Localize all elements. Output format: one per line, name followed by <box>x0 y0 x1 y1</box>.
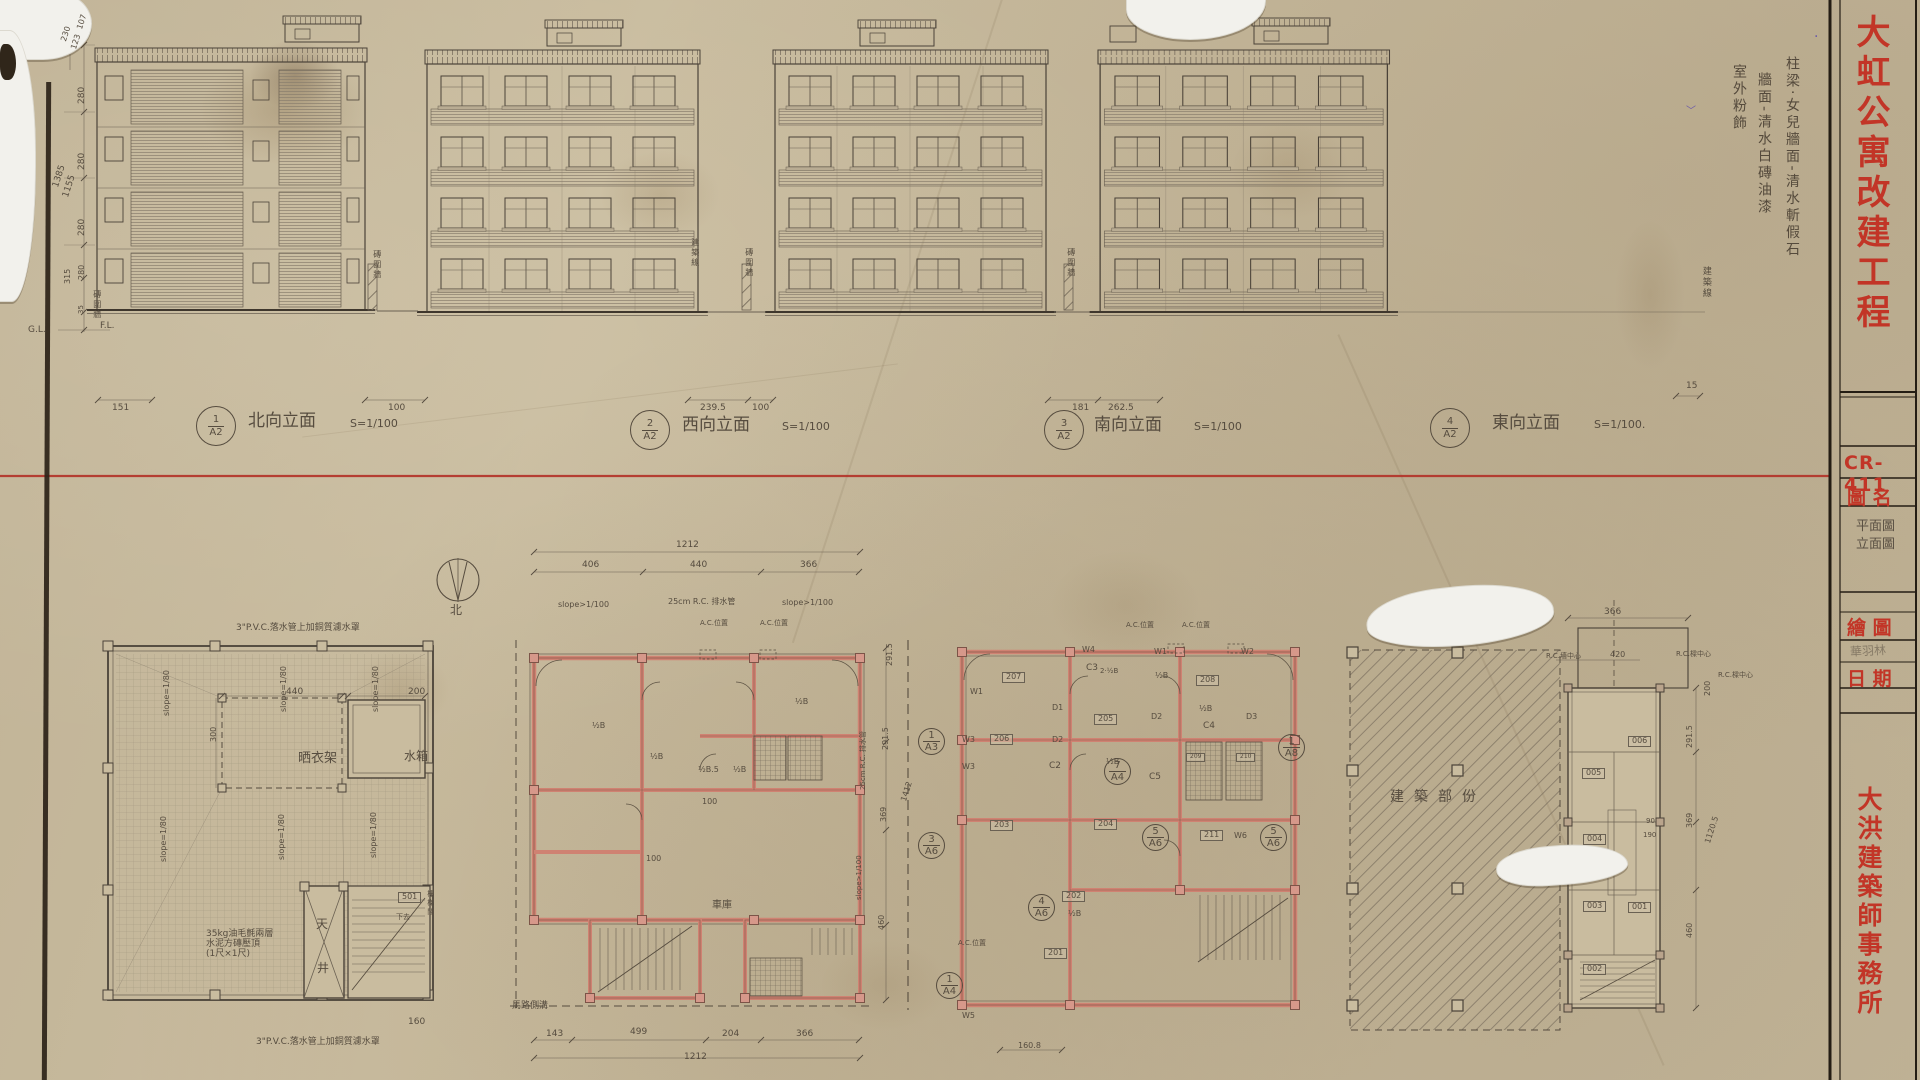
annotation: 馬路側溝 <box>512 1002 548 1012</box>
annotation: 207 <box>1002 672 1025 683</box>
annotation: · <box>1814 30 1818 45</box>
drawn-by-signature: 華羽林 <box>1850 641 1887 660</box>
annotation: ½B <box>1068 910 1081 919</box>
date-label: 日 期 <box>1847 664 1892 691</box>
annotation: slope>1/100 <box>782 599 833 608</box>
annotation: 209 <box>1186 753 1205 762</box>
annotation: 262.5 <box>1108 404 1134 414</box>
annotation: 239.5 <box>700 404 726 414</box>
annotation: 143 <box>546 1030 563 1040</box>
annotation: 210 <box>1236 753 1255 762</box>
annotation: 205 <box>1094 714 1117 725</box>
finish-note-exterior: 室外粉飾 <box>1729 64 1749 132</box>
annotation: 005 <box>1582 768 1605 779</box>
annotation: 300 <box>210 727 219 742</box>
annotation: 7A4 <box>1104 758 1131 785</box>
annotation: A.C.位置 <box>1126 622 1154 630</box>
annotation: 北 <box>450 604 462 617</box>
annotation: W3 <box>962 736 975 745</box>
annotation: 366 <box>796 1030 813 1040</box>
annotation: 369 <box>880 807 889 822</box>
annotation: 460 <box>878 915 887 930</box>
annotation: C5 <box>1149 773 1161 783</box>
annotation: 406 <box>582 561 599 571</box>
drawing-name-label: 圖 名 <box>1847 483 1892 510</box>
drawing-name-line1: 平面圖 <box>1856 515 1895 534</box>
annotation: 4A2 <box>1430 408 1470 448</box>
annotation: slope=1/80 <box>163 670 172 716</box>
annotation: ½B <box>733 766 746 775</box>
annotation: 440 <box>690 561 707 571</box>
annotation: F.L. <box>100 322 114 332</box>
annotation: 208 <box>1196 675 1219 686</box>
annotation: A.C.位置 <box>958 940 986 948</box>
annotation: 晒衣架 <box>298 752 337 766</box>
annotation: 160.8 <box>1018 1042 1041 1051</box>
annotation: slope>1/100 <box>856 855 864 900</box>
annotation: W6 <box>1234 832 1247 841</box>
annotation: 420 <box>1610 651 1625 660</box>
annotation: 1212 <box>676 541 699 551</box>
project-title: 大虹公寓改建工程 <box>1846 14 1895 386</box>
annotation: ½B <box>650 753 663 762</box>
annotation: 35kg油毛氈兩層 水泥方磚壓頂 (1尺×1尺) <box>206 930 273 960</box>
annotation: 5A6 <box>1260 824 1287 851</box>
annotation: 1A8 <box>1278 734 1305 761</box>
annotation: D1 <box>1052 704 1063 713</box>
annotation: G.L. <box>28 326 46 336</box>
annotation: S=1/100 <box>782 421 830 433</box>
annotation: 3"P.V.C.落水管上加銅質濾水罩 <box>256 1038 380 1048</box>
annotation: A.C.位置 <box>1182 622 1210 630</box>
finish-note-structure: 柱梁·女兒牆面-清水斬假石 <box>1782 56 1802 259</box>
annotation: slope=1/80 <box>278 814 287 860</box>
annotation: 1A3 <box>918 728 945 755</box>
annotation: 002 <box>1583 964 1606 975</box>
annotation: S=1/100 <box>1194 421 1242 433</box>
annotation: 1A2 <box>196 406 236 446</box>
annotation: 35 <box>78 305 86 314</box>
annotation: ½B <box>1155 672 1168 681</box>
annotation: 190 <box>1643 832 1656 840</box>
annotation: 100 <box>702 798 717 807</box>
annotation: ½B.5 <box>698 766 719 775</box>
annotation: 200 <box>1704 681 1713 696</box>
annotation: 206 <box>990 734 1013 745</box>
drawing-linework <box>0 0 1920 1080</box>
annotation: 1212 <box>684 1053 707 1063</box>
annotation: 2·½B <box>1100 668 1118 676</box>
torn-edge-mark <box>0 44 16 80</box>
annotation: 樓梯間 <box>426 890 434 917</box>
annotation: 天 <box>316 918 328 931</box>
annotation: 151 <box>112 404 129 414</box>
annotation: 160 <box>408 1018 425 1028</box>
annotation: 201 <box>1044 948 1067 959</box>
annotation: 磚圍牆 <box>92 290 101 320</box>
annotation: W2 <box>1241 648 1254 657</box>
finish-note-wall: 牆面-清水白磚油漆 <box>1754 72 1774 216</box>
annotation: 南向立面 <box>1094 416 1162 435</box>
annotation: 北向立面 <box>248 412 316 431</box>
annotation: R.C.樑中心 <box>1676 651 1711 659</box>
annotation: 280 <box>78 265 87 280</box>
annotation: 5A6 <box>1142 824 1169 851</box>
annotation: D3 <box>1246 713 1257 722</box>
annotation: 3A2 <box>1044 410 1084 450</box>
annotation: slope>1/100 <box>558 601 609 610</box>
annotation: 280 <box>78 153 88 170</box>
annotation: 西向立面 <box>682 416 750 435</box>
annotation: 磚圍牆 <box>1066 248 1075 278</box>
annotation: 1A4 <box>936 972 963 999</box>
architect-firm: 大洪建築師事務所 <box>1850 786 1886 1076</box>
annotation: 291.5 <box>1686 725 1695 748</box>
annotation: 井 <box>317 962 329 975</box>
annotation: W1 <box>1154 648 1167 657</box>
annotation: 2A2 <box>630 410 670 450</box>
annotation: ½B <box>592 722 605 731</box>
annotation: 水箱 <box>404 750 428 763</box>
annotation: 006 <box>1628 736 1651 747</box>
annotation: slope=1/80 <box>370 812 379 858</box>
annotation: C4 <box>1203 722 1215 732</box>
annotation: W5 <box>962 1012 975 1021</box>
annotation: R.C.墻中心 <box>1546 653 1581 661</box>
annotation: W4 <box>1082 646 1095 655</box>
annotation: 003 <box>1583 901 1606 912</box>
annotation: W3 <box>962 763 975 772</box>
annotation: 200 <box>408 688 425 698</box>
annotation: S=1/100 <box>350 418 398 430</box>
annotation: 25cm R.C. 排水管 <box>668 598 735 607</box>
annotation: 磚圍牆 <box>372 250 381 280</box>
annotation: 440 <box>286 688 303 698</box>
annotation: 211 <box>1200 830 1223 841</box>
annotation: 15 <box>1686 382 1697 392</box>
annotation: 100 <box>388 404 405 414</box>
annotation: C3 <box>1086 664 1098 674</box>
annotation: slope=1/80 <box>372 666 381 712</box>
annotation: 下去 <box>396 914 410 922</box>
annotation: W1 <box>970 688 983 697</box>
annotation: S=1/100. <box>1594 419 1645 431</box>
annotation: 291.5 <box>882 727 891 750</box>
annotation: D2 <box>1151 713 1162 722</box>
annotation: 369 <box>1686 813 1695 828</box>
annotation: 204 <box>1094 819 1117 830</box>
annotation: 25cm R.C. 排水管 <box>860 731 868 790</box>
annotation: 499 <box>630 1028 647 1038</box>
blueprint-sheet: 柱梁·女兒牆面-清水斬假石 牆面-清水白磚油漆 室外粉飾 大虹公寓改建工程 CR… <box>0 0 1920 1080</box>
annotation: 291.5 <box>886 643 895 666</box>
annotation: A.C.位置 <box>700 620 728 628</box>
annotation: 004 <box>1583 834 1606 845</box>
annotation: 90 <box>1646 818 1655 826</box>
annotation: 501 <box>398 892 421 903</box>
annotation: 建築線 <box>690 238 699 268</box>
drawn-by-label: 繪 圖 <box>1847 613 1892 640</box>
annotation: 204 <box>722 1030 739 1040</box>
annotation: 車庫 <box>712 900 732 911</box>
annotation: 280 <box>78 87 88 104</box>
drawing-name-line2: 立面圖 <box>1856 533 1895 552</box>
annotation: 366 <box>1604 608 1621 618</box>
annotation: D2 <box>1052 736 1063 745</box>
annotation: 202 <box>1062 891 1085 902</box>
annotation: 315 <box>64 269 73 284</box>
annotation: 100 <box>752 404 769 414</box>
annotation: 100 <box>646 855 661 864</box>
annotation: 366 <box>800 561 817 571</box>
annotation: 460 <box>1686 923 1695 938</box>
annotation: R.C.樑中心 <box>1718 672 1753 680</box>
annotation: A.C.位置 <box>760 620 788 628</box>
annotation: ½B <box>1199 705 1212 714</box>
annotation: ½B <box>795 698 808 707</box>
annotation: 203 <box>990 820 1013 831</box>
annotation: 280 <box>78 219 88 236</box>
annotation: ﹀ <box>1686 106 1696 117</box>
annotation: 3"P.V.C.落水管上加銅質濾水罩 <box>236 624 360 634</box>
annotation: 001 <box>1628 902 1651 913</box>
annotation: 建築線 <box>1700 266 1710 299</box>
annotation: C2 <box>1049 762 1061 772</box>
annotation: 東向立面 <box>1492 414 1560 433</box>
annotation: 磚圍牆 <box>744 248 753 278</box>
annotation: 建築部份 <box>1390 790 1486 805</box>
annotation: 4A6 <box>1028 894 1055 921</box>
annotation: slope=1/80 <box>160 816 169 862</box>
annotation: 3A6 <box>918 832 945 859</box>
